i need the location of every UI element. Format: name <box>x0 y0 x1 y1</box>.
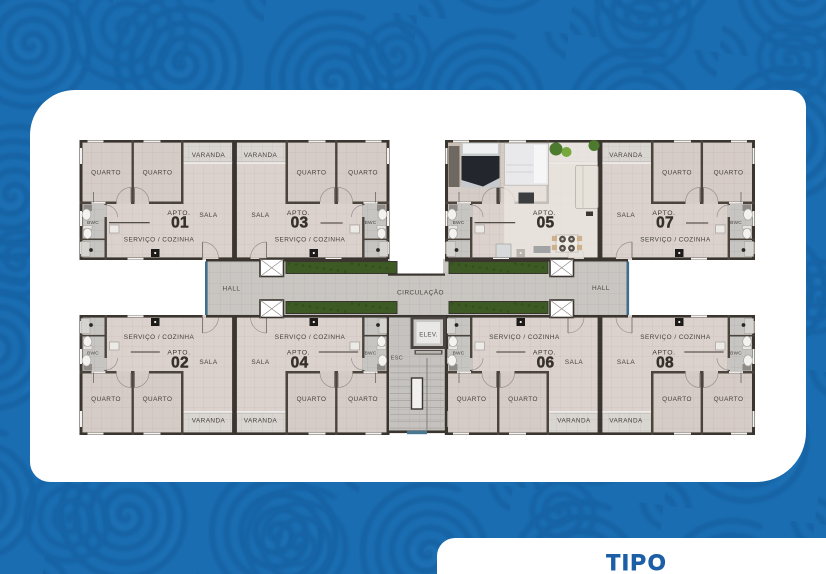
svg-text:05: 05 <box>537 215 555 232</box>
svg-text:SALA: SALA <box>199 359 217 366</box>
svg-text:BWC: BWC <box>87 351 99 357</box>
svg-text:QUARTO: QUARTO <box>143 396 173 403</box>
svg-text:QUARTO: QUARTO <box>714 396 744 403</box>
svg-text:SERVIÇO / COZINHA: SERVIÇO / COZINHA <box>124 334 195 341</box>
svg-text:SALA: SALA <box>617 359 635 366</box>
svg-text:CIRCULAÇÃO: CIRCULAÇÃO <box>397 287 444 296</box>
svg-text:BWC: BWC <box>730 351 742 357</box>
svg-text:QUARTO: QUARTO <box>143 169 173 176</box>
svg-text:QUARTO: QUARTO <box>508 396 538 403</box>
svg-text:SALA: SALA <box>565 359 583 366</box>
svg-text:01: 01 <box>171 215 189 232</box>
svg-text:VARANDA: VARANDA <box>244 152 278 159</box>
svg-text:VARANDA: VARANDA <box>609 417 643 424</box>
svg-text:VARANDA: VARANDA <box>244 417 278 424</box>
svg-text:VARANDA: VARANDA <box>192 417 226 424</box>
svg-text:QUARTO: QUARTO <box>348 169 378 176</box>
svg-text:08: 08 <box>656 355 674 372</box>
svg-text:QUARTO: QUARTO <box>91 169 121 176</box>
svg-text:QUARTO: QUARTO <box>91 396 121 403</box>
svg-text:SALA: SALA <box>617 212 635 219</box>
svg-text:BWC: BWC <box>730 220 742 226</box>
svg-text:SERVIÇO / COZINHA: SERVIÇO / COZINHA <box>275 237 346 244</box>
svg-text:QUARTO: QUARTO <box>662 169 692 176</box>
svg-text:VARANDA: VARANDA <box>192 152 226 159</box>
svg-text:BWC: BWC <box>365 220 377 226</box>
svg-text:07: 07 <box>656 215 674 232</box>
svg-text:QUARTO: QUARTO <box>297 396 327 403</box>
svg-text:QUARTO: QUARTO <box>457 396 487 403</box>
svg-text:VARANDA: VARANDA <box>609 152 643 159</box>
svg-text:04: 04 <box>291 355 309 372</box>
svg-text:SERVIÇO / COZINHA: SERVIÇO / COZINHA <box>489 334 560 341</box>
svg-text:QUARTO: QUARTO <box>714 169 744 176</box>
svg-text:ESC: ESC <box>391 356 403 362</box>
svg-text:SERVIÇO / COZINHA: SERVIÇO / COZINHA <box>640 334 711 341</box>
svg-text:03: 03 <box>291 215 309 232</box>
svg-text:VARANDA: VARANDA <box>557 417 591 424</box>
svg-text:SERVIÇO / COZINHA: SERVIÇO / COZINHA <box>275 334 346 341</box>
svg-text:SERVIÇO / COZINHA: SERVIÇO / COZINHA <box>124 237 195 244</box>
svg-text:ELEV.: ELEV. <box>419 332 437 339</box>
svg-text:BWC: BWC <box>87 220 99 226</box>
svg-text:SALA: SALA <box>251 359 269 366</box>
svg-text:TIPO: TIPO <box>606 550 667 574</box>
svg-text:QUARTO: QUARTO <box>297 169 327 176</box>
svg-text:SALA: SALA <box>251 212 269 219</box>
svg-text:BWC: BWC <box>453 351 465 357</box>
svg-text:SERVIÇO / COZINHA: SERVIÇO / COZINHA <box>640 237 711 244</box>
svg-text:02: 02 <box>171 355 189 372</box>
svg-text:BWC: BWC <box>365 351 377 357</box>
svg-text:QUARTO: QUARTO <box>348 396 378 403</box>
svg-text:HALL: HALL <box>223 286 241 293</box>
svg-text:QUARTO: QUARTO <box>662 396 692 403</box>
svg-text:HALL: HALL <box>592 285 610 292</box>
svg-text:BWC: BWC <box>453 220 465 226</box>
svg-text:06: 06 <box>537 355 555 372</box>
svg-text:SALA: SALA <box>199 212 217 219</box>
